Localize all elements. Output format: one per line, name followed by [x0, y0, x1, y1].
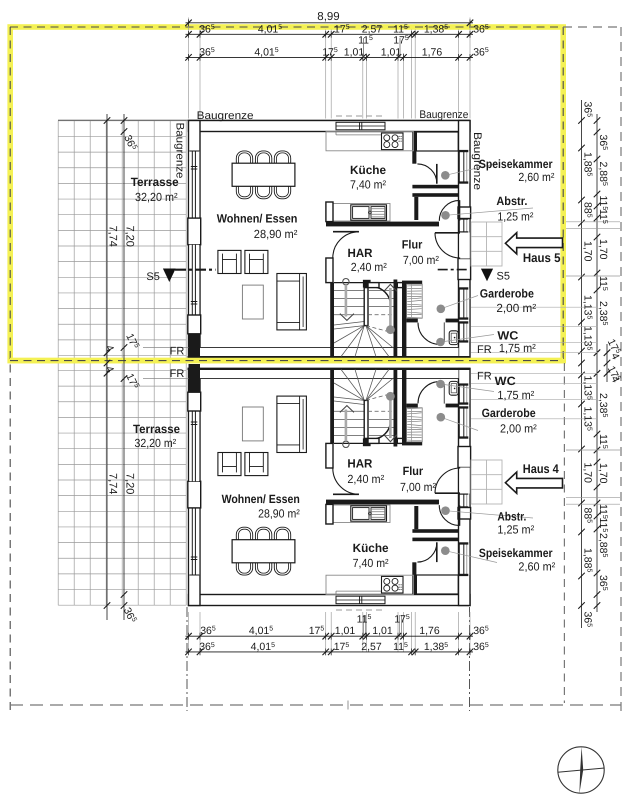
svg-text:2,00 m²: 2,00 m²: [496, 301, 536, 315]
svg-text:1,01: 1,01: [344, 46, 365, 58]
svg-text:Baugrenze: Baugrenze: [197, 110, 254, 122]
svg-text:Haus 4: Haus 4: [523, 462, 559, 476]
svg-text:1,70: 1,70: [597, 463, 609, 484]
svg-text:FR: FR: [477, 344, 492, 356]
svg-text:WC: WC: [495, 374, 516, 388]
svg-text:S5: S5: [497, 270, 510, 282]
svg-text:FR: FR: [170, 346, 185, 358]
svg-text:Flur: Flur: [402, 237, 423, 251]
svg-text:32,20 m²: 32,20 m²: [135, 436, 177, 450]
svg-text:7,40 m²: 7,40 m²: [353, 556, 389, 570]
svg-text:8,99: 8,99: [317, 11, 339, 23]
svg-text:1,70: 1,70: [581, 463, 593, 484]
svg-text:Garderobe: Garderobe: [480, 287, 534, 301]
svg-text:Küche: Küche: [353, 541, 389, 555]
svg-text:1,76: 1,76: [419, 625, 440, 637]
svg-text:1,01: 1,01: [381, 46, 402, 58]
svg-text:S5: S5: [146, 271, 159, 283]
svg-text:Baugrenze: Baugrenze: [174, 123, 186, 179]
svg-text:Speisekammer: Speisekammer: [479, 157, 553, 171]
svg-text:1,75 m²: 1,75 m²: [499, 341, 536, 355]
svg-text:7,74: 7,74: [107, 226, 119, 247]
svg-text:1,01: 1,01: [372, 625, 393, 637]
svg-text:1,25 m²: 1,25 m²: [497, 523, 534, 537]
svg-text:2,57: 2,57: [361, 641, 382, 653]
svg-text:1,76: 1,76: [422, 46, 443, 58]
svg-text:7,40 m²: 7,40 m²: [350, 177, 386, 191]
svg-text:Abstr.: Abstr.: [496, 194, 527, 208]
svg-text:Terrasse: Terrasse: [133, 422, 180, 436]
svg-text:Wohnen/ Essen: Wohnen/ Essen: [222, 492, 300, 506]
svg-text:28,90 m²: 28,90 m²: [254, 227, 298, 241]
svg-text:1,70: 1,70: [597, 239, 609, 260]
svg-text:2,60 m²: 2,60 m²: [518, 559, 555, 573]
svg-text:2,00 m²: 2,00 m²: [500, 422, 537, 436]
svg-text:2,40 m²: 2,40 m²: [347, 472, 384, 486]
svg-text:Wohnen/ Essen: Wohnen/ Essen: [217, 212, 298, 226]
svg-text:2,60 m²: 2,60 m²: [518, 170, 554, 184]
svg-text:Haus 5: Haus 5: [523, 251, 561, 265]
svg-text:Baugrenze: Baugrenze: [419, 109, 468, 121]
svg-text:7,00 m²: 7,00 m²: [400, 480, 436, 494]
svg-text:1,75 m²: 1,75 m²: [497, 388, 534, 402]
svg-text:7,20: 7,20: [124, 226, 136, 247]
svg-text:Terrasse: Terrasse: [131, 175, 179, 189]
svg-text:Speisekammer: Speisekammer: [479, 546, 553, 560]
svg-text:28,90 m²: 28,90 m²: [258, 506, 300, 520]
svg-text:HAR: HAR: [348, 246, 373, 260]
svg-text:Küche: Küche: [350, 163, 386, 177]
svg-text:1,25 m²: 1,25 m²: [497, 210, 533, 224]
svg-text:Abstr.: Abstr.: [497, 509, 526, 523]
svg-text:1,70: 1,70: [581, 241, 593, 262]
svg-text:7,20: 7,20: [124, 473, 136, 494]
svg-text:32,20 m²: 32,20 m²: [135, 190, 178, 204]
svg-text:Flur: Flur: [403, 464, 424, 478]
svg-text:2,40 m²: 2,40 m²: [351, 260, 387, 274]
svg-text:HAR: HAR: [347, 457, 372, 471]
svg-text:Garderobe: Garderobe: [482, 406, 536, 420]
svg-text:1,01: 1,01: [335, 625, 356, 637]
svg-text:7,74: 7,74: [107, 473, 119, 494]
svg-text:FR: FR: [170, 368, 185, 380]
svg-text:FR: FR: [477, 371, 492, 383]
svg-text:7,00 m²: 7,00 m²: [403, 253, 439, 267]
